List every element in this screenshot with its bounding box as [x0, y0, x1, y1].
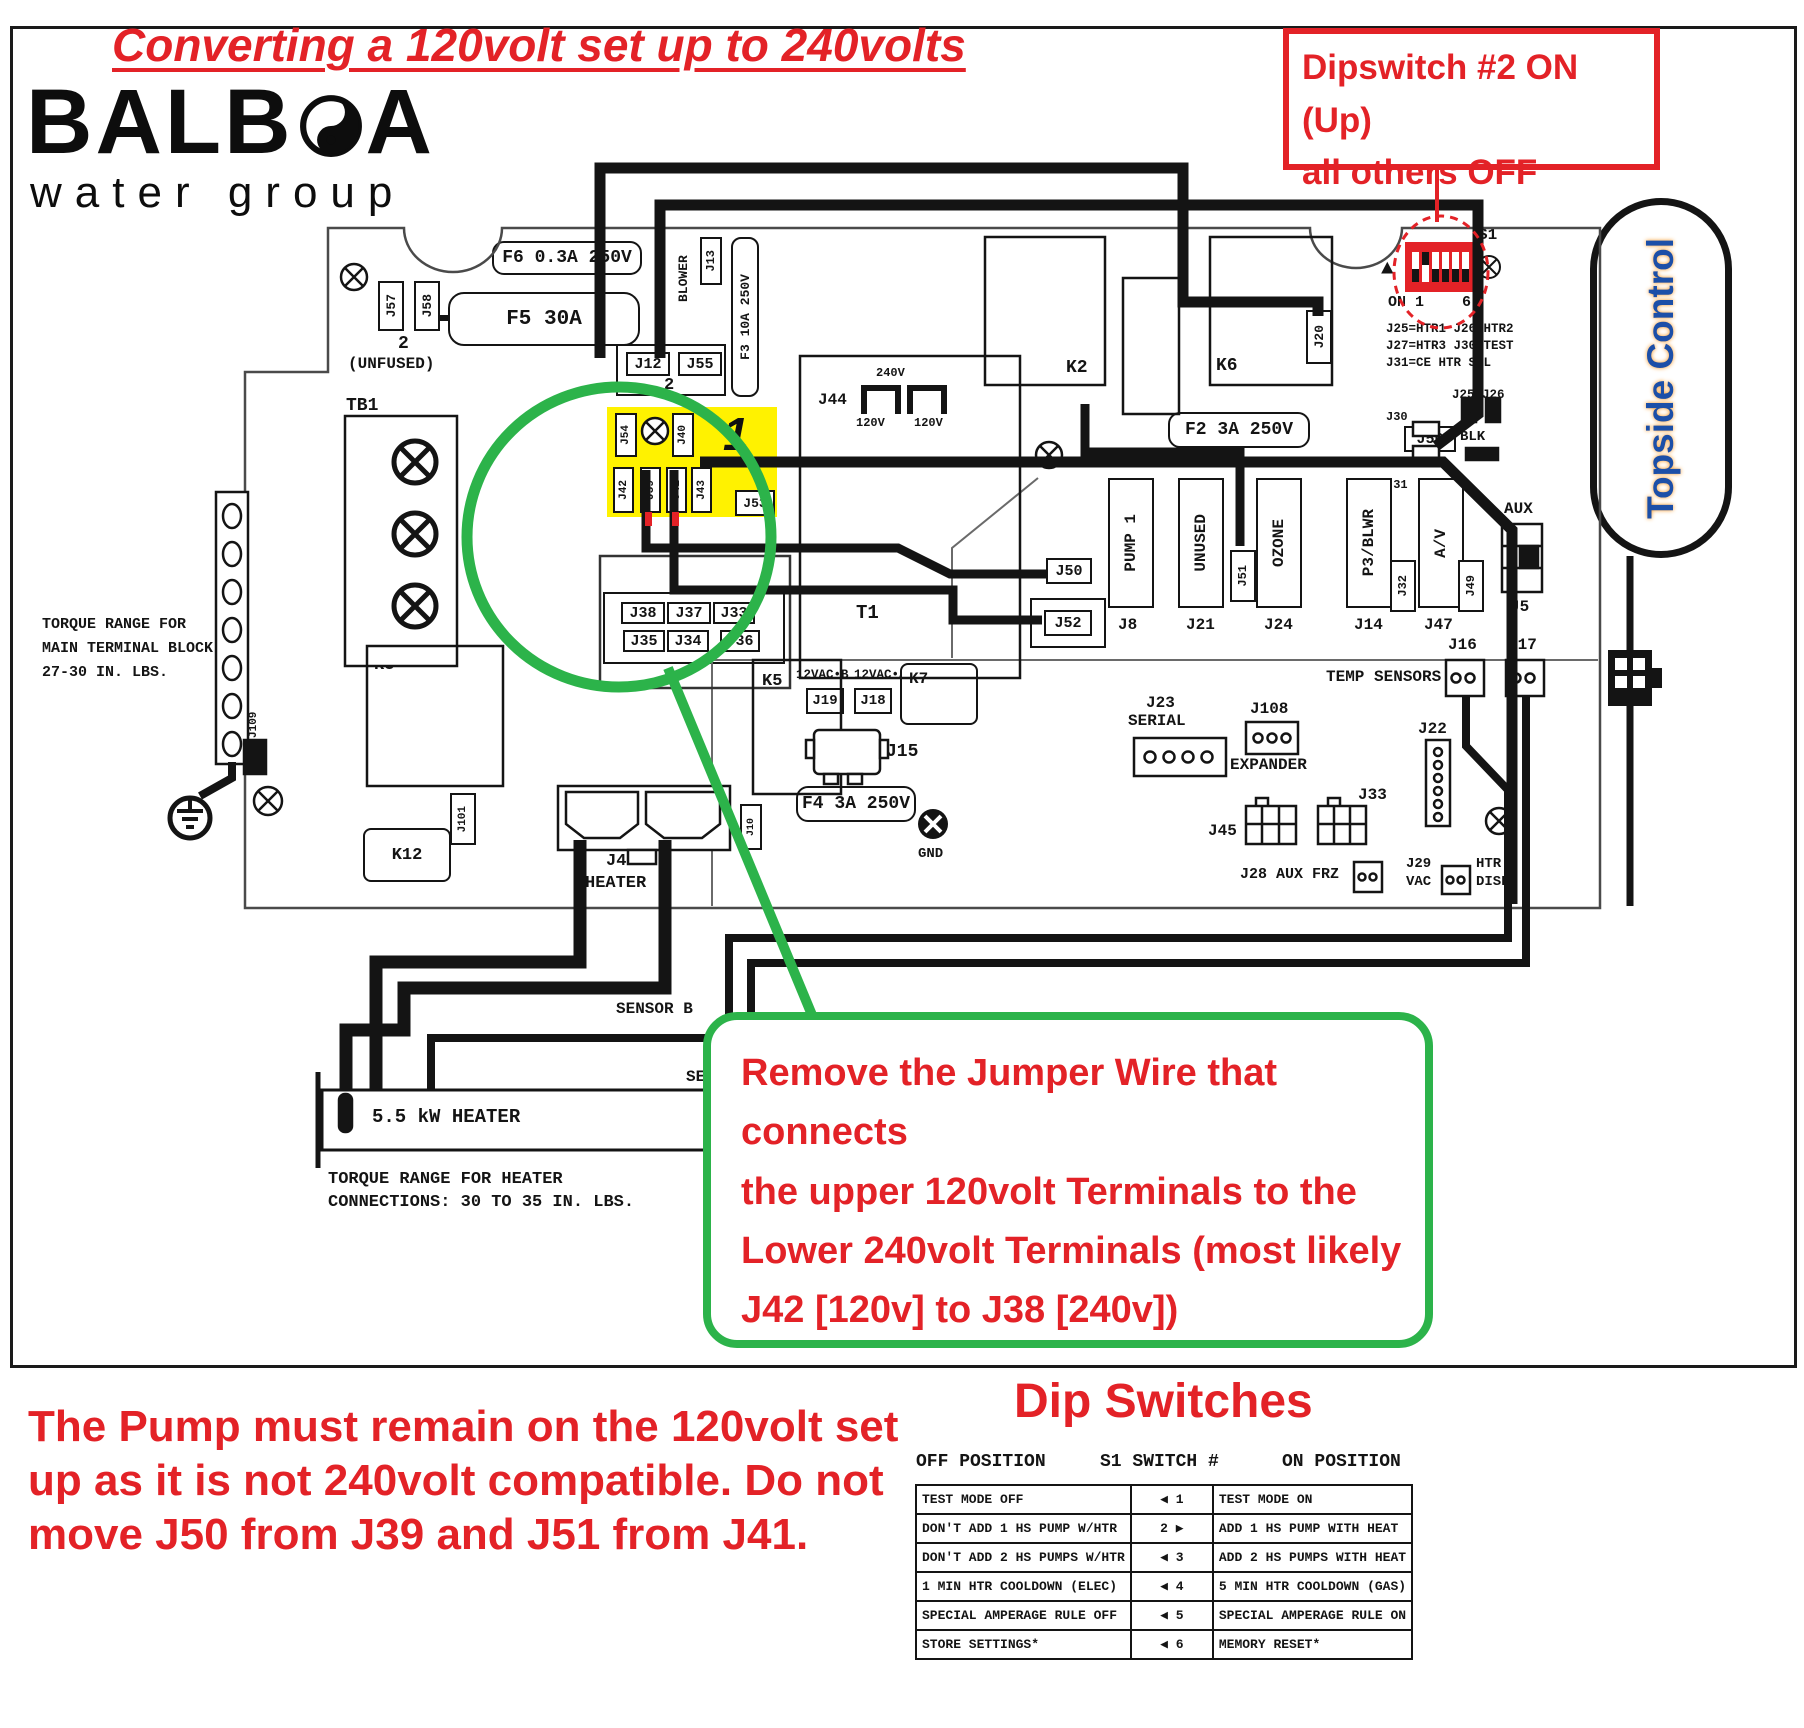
j45-label: J45 [1208, 822, 1237, 840]
temp-sensors-label: TEMP SENSORS [1326, 668, 1441, 686]
jumper-legend-1: J25=HTR1 J26=HTR2 [1386, 322, 1514, 336]
connector-j34: J34 [667, 630, 709, 652]
connector-j49-label: J49 [1464, 575, 1478, 597]
connector-j101: J101 [450, 793, 476, 845]
j15-label: J15 [886, 742, 918, 762]
connector-pump1-label: PUMP 1 [1122, 514, 1140, 572]
j17-label: J17 [1508, 636, 1537, 654]
connector-j13-label: J13 [704, 250, 718, 272]
connector-j40-label: J40 [677, 425, 689, 445]
connector-j33-jumper-label: J33 [720, 605, 747, 622]
on-1-label: ON 1 [1388, 294, 1424, 311]
dip-3 [1432, 252, 1439, 282]
relay-k3-label: K3 [374, 656, 394, 675]
connector-j13: J13 [700, 237, 722, 285]
connector-j52-label: J52 [1054, 615, 1081, 632]
blk-label: BLK [1460, 429, 1485, 445]
connector-pump1: PUMP 1 [1108, 478, 1154, 608]
relay-k12: K12 [363, 828, 451, 882]
connector-ozone-label: OZONE [1270, 519, 1288, 567]
jumper-callout-line1: Remove the Jumper Wire that connects [741, 1044, 1425, 1163]
dipswitch-s1 [1405, 242, 1475, 292]
table-row: 1 MIN HTR COOLDOWN (ELEC)◀ 45 MIN HTR CO… [916, 1572, 1412, 1601]
connector-j43: J43 [691, 467, 712, 513]
relay-k6-label: K6 [1216, 356, 1238, 376]
connector-j36-label: J36 [726, 633, 753, 650]
connector-j52-outer: J52 [1030, 598, 1106, 648]
connector-j20-label: J20 [1312, 325, 1327, 348]
j23-label: J23 [1146, 694, 1175, 712]
logo-text-right: A [366, 70, 432, 175]
dip-col-switch: S1 SWITCH # [1100, 1452, 1219, 1472]
relay-k7: K7 [900, 663, 978, 725]
dip-on-3: ADD 2 HS PUMPS WITH HEAT [1213, 1543, 1412, 1572]
fuse-f6: F6 0.3A 250V [492, 241, 642, 275]
expander-label: EXPANDER [1230, 756, 1307, 774]
j44-label: J44 [818, 391, 847, 409]
j21-label: J21 [1186, 616, 1215, 634]
connector-j19: J19 [806, 688, 844, 714]
dip-on-5: SPECIAL AMPERAGE RULE ON [1213, 1601, 1412, 1630]
tb1-terminal-2: 2 [352, 520, 368, 550]
serial-label: SERIAL [1128, 712, 1186, 730]
connector-j53: J53 [735, 490, 775, 516]
connector-j57: J57 [378, 281, 404, 331]
connector-j38: J38 [621, 602, 665, 624]
connector-j56-label: J56 [1416, 431, 1443, 448]
jumper-callout-line2: the upper 120volt Terminals to the [741, 1163, 1425, 1222]
dip-switches-table: TEST MODE OFF◀ 1TEST MODE ON DON'T ADD 1… [915, 1484, 1413, 1660]
jumper-legend-3: J31=CE HTR SEL [1386, 356, 1491, 370]
12vac-b-label: 12VAC•B [796, 668, 849, 682]
connector-j12-label: J12 [634, 356, 661, 373]
dipswitch-callout: Dipswitch #2 ON (Up) all others OFF [1283, 28, 1660, 170]
connector-j54-label: J54 [620, 425, 632, 445]
connector-j12: J12 [626, 352, 670, 376]
tb1-terminal-1: 1 [352, 448, 368, 478]
connector-j19-label: J19 [812, 693, 837, 709]
dip-sw-5: ◀ 5 [1131, 1601, 1213, 1630]
12vac-a-label: 12VAC•A [854, 668, 907, 682]
connector-j51: J51 [1230, 550, 1256, 602]
connector-j36: J36 [720, 630, 760, 652]
j14-label: J14 [1354, 616, 1383, 634]
highlight-step-1: 1 [723, 407, 749, 461]
jumper-callout-line3: Lower 240volt Terminals (most likely [741, 1222, 1425, 1281]
page: Converting a 120volt set up to 240volts … [0, 0, 1804, 1728]
torque-main-line2: MAIN TERMINAL BLOCK: [42, 640, 222, 657]
connector-j43-label: J43 [696, 480, 708, 500]
j12-block-count: 2 [664, 376, 674, 395]
htr-label: HTR [1476, 856, 1501, 872]
connector-av-label: A/V [1432, 529, 1450, 558]
dip-1 [1412, 252, 1419, 282]
connector-j37: J37 [667, 602, 711, 624]
j24-label: J24 [1264, 616, 1293, 634]
fuse-f5: F5 30A [448, 292, 640, 346]
relay-k12-label: K12 [392, 846, 423, 865]
jumper-callout-line4: J42 [120v] to J38 [240v]) [741, 1281, 1425, 1340]
fuse-f4-label: F4 3A 250V [802, 794, 910, 814]
dip-sw-6: ◀ 6 [1131, 1630, 1213, 1659]
connector-j50: J50 [1046, 558, 1092, 584]
connector-j32: J32 [1390, 560, 1416, 612]
jumper-bank-240v: J38 J37 J33 J35 J34 J36 [603, 592, 785, 664]
jumper-legend-2: J27=HTR3 J30=TEST [1386, 339, 1514, 353]
j109-label: J109 [248, 694, 260, 738]
sensor-b-label: SENSOR B [616, 1000, 693, 1018]
dipswitch-callout-line2: all others OFF [1302, 147, 1654, 200]
j5-label: J5 [1510, 598, 1529, 616]
connector-j20: J20 [1306, 310, 1332, 364]
dip-sw-3: ◀ 3 [1131, 1543, 1213, 1572]
logo-subtitle: water group [30, 168, 405, 218]
connector-j53-label: J53 [743, 496, 766, 511]
connector-j41: J41 [666, 467, 687, 513]
fuse-f2-label: F2 3A 250V [1185, 420, 1293, 440]
tb1-label: TB1 [346, 396, 378, 416]
yin-yang-icon [298, 93, 364, 159]
connector-j37-label: J37 [675, 605, 702, 622]
connector-p3blwr: P3/BLWR [1346, 478, 1392, 608]
unfused-label: (UNFUSED) [348, 355, 434, 373]
connector-j39: J39 [640, 467, 661, 513]
dip-col-on: ON POSITION [1282, 1452, 1401, 1472]
connector-unused-label: UNUSED [1192, 514, 1210, 572]
connector-j52: J52 [1044, 610, 1092, 636]
j44-120v-label-2: 120V [914, 416, 943, 430]
j8-label: J8 [1118, 616, 1137, 634]
connector-j42: J42 [613, 467, 634, 513]
connector-j51-label: J51 [1236, 565, 1250, 587]
dip-sw-4: ◀ 4 [1131, 1572, 1213, 1601]
connector-j42-label: J42 [618, 480, 630, 500]
fuse-f6-label: F6 0.3A 250V [502, 248, 632, 268]
pump-note-line1: The Pump must remain on the 120volt set [28, 1400, 898, 1454]
connector-j41-label: J41 [671, 480, 683, 500]
page-title: Converting a 120volt set up to 240volts [112, 18, 966, 72]
on-arrow: ▲ [1381, 258, 1394, 281]
relay-k7-label: K7 [909, 670, 928, 688]
dip-on-4: 5 MIN HTR COOLDOWN (GAS) [1213, 1572, 1412, 1601]
dipswitch-callout-line1: Dipswitch #2 ON (Up) [1302, 42, 1654, 147]
j33-label: J33 [1358, 786, 1387, 804]
connector-j58-label: J58 [420, 294, 435, 317]
dip-off-6: STORE SETTINGS* [916, 1630, 1131, 1659]
connector-p3blwr-label: P3/BLWR [1360, 509, 1378, 576]
torque-main-line3: 27-30 IN. LBS. [42, 664, 168, 681]
table-row: STORE SETTINGS*◀ 6MEMORY RESET* [916, 1630, 1412, 1659]
j28-aux-frz-label: J28 AUX FRZ [1240, 866, 1339, 883]
dip-on-1: TEST MODE ON [1213, 1485, 1412, 1514]
dip-on-2: ADD 1 HS PUMP WITH HEAT [1213, 1514, 1412, 1543]
connector-j34-label: J34 [674, 633, 701, 650]
torque-main-line1: TORQUE RANGE FOR [42, 616, 186, 633]
fuse-f3-label: F3 10A 250V [738, 274, 753, 360]
table-row: DON'T ADD 2 HS PUMPS W/HTR◀ 3ADD 2 HS PU… [916, 1543, 1412, 1572]
dip-on-6: MEMORY RESET* [1213, 1630, 1412, 1659]
heater-block-label: 5.5 kW HEATER [372, 1106, 520, 1128]
dip-2 [1422, 252, 1429, 282]
connector-j10-label: J10 [746, 818, 757, 836]
t1-label: T1 [856, 602, 879, 624]
j44-240v-label: 240V [876, 366, 905, 380]
connector-j57-label: J57 [384, 294, 399, 317]
connector-j39-label: J39 [645, 480, 657, 500]
j22-label: J22 [1418, 720, 1447, 738]
connector-j18-label: J18 [860, 693, 885, 709]
fuse-f3: F3 10A 250V [731, 237, 759, 397]
j44-120v-label-1: 120V [856, 416, 885, 430]
connector-j38-label: J38 [629, 605, 656, 622]
j30-label: J30 [1386, 410, 1408, 424]
dip-off-1: TEST MODE OFF [916, 1485, 1131, 1514]
pump-note: The Pump must remain on the 120volt set … [28, 1400, 898, 1562]
j46-heater-label: HEATER [585, 874, 646, 893]
disbl-label: DISBL [1476, 874, 1518, 890]
gnd-label: GND [918, 846, 943, 862]
dip-5 [1452, 252, 1459, 282]
dip-sw-1: ◀ 1 [1131, 1485, 1213, 1514]
pump-note-line3: move J50 from J39 and J51 from J41. [28, 1508, 898, 1562]
connector-j54: J54 [615, 413, 637, 457]
j25-j26-label: J25 J26 [1452, 388, 1505, 402]
dip-col-off: OFF POSITION [916, 1452, 1046, 1472]
table-row: SPECIAL AMPERAGE RULE OFF◀ 5SPECIAL AMPE… [916, 1601, 1412, 1630]
j46-label: J46 [606, 852, 637, 871]
dip-off-2: DON'T ADD 1 HS PUMP W/HTR [916, 1514, 1131, 1543]
connector-j35-label: J35 [630, 633, 657, 650]
topside-control: Topside Control [1590, 198, 1732, 558]
dip-4 [1442, 252, 1449, 282]
j47-label: J47 [1424, 616, 1453, 634]
vac-label: VAC [1406, 874, 1431, 890]
tb1-terminal-3: 3 [352, 592, 368, 622]
connector-j10: J10 [740, 804, 762, 850]
fuse-f4: F4 3A 250V [796, 786, 916, 822]
torque-heater-line1: TORQUE RANGE FOR HEATER [328, 1170, 563, 1189]
blower-label: BLOWER [676, 232, 691, 302]
s1-label: S1 [1478, 226, 1497, 244]
jumper-callout: Remove the Jumper Wire that connects the… [703, 1012, 1433, 1348]
aux-label: AUX [1504, 500, 1533, 518]
connector-j18: J18 [854, 688, 892, 714]
connector-j56: J56 [1404, 426, 1456, 452]
balboa-logo: BALB A [26, 70, 432, 175]
relay-k5-label: K5 [762, 672, 782, 691]
dip-off-3: DON'T ADD 2 HS PUMPS W/HTR [916, 1543, 1131, 1572]
dip-off-5: SPECIAL AMPERAGE RULE OFF [916, 1601, 1131, 1630]
j108-label: J108 [1250, 700, 1288, 718]
connector-j35: J35 [623, 630, 665, 652]
topside-control-label: Topside Control [1640, 238, 1682, 519]
connector-j49: J49 [1458, 560, 1484, 612]
connector-j32-label: J32 [1396, 575, 1410, 597]
connector-ozone: OZONE [1256, 478, 1302, 608]
j29-label: J29 [1406, 856, 1431, 872]
pump-note-line2: up as it is not 240volt compatible. Do n… [28, 1454, 898, 1508]
connector-unused: UNUSED [1178, 478, 1224, 608]
relay-k2-label: K2 [1066, 358, 1088, 378]
connector-j33-jumper: J33 [713, 602, 755, 624]
fuse-f5-label: F5 30A [506, 308, 582, 331]
fuse-f2: F2 3A 250V [1168, 412, 1310, 448]
connector-j12-j55-block: J12 J55 2 [616, 344, 726, 396]
dip-6 [1462, 252, 1469, 282]
connector-j40: J40 [672, 413, 694, 457]
connector-j55: J55 [678, 352, 722, 376]
light-label: LIGHT [822, 742, 867, 759]
connector-j58: J58 [414, 281, 440, 331]
torque-heater-line2: CONNECTIONS: 30 TO 35 IN. LBS. [328, 1193, 634, 1212]
unfused-count: 2 [398, 334, 409, 354]
j16-label: J16 [1448, 636, 1477, 654]
switch-6-label: 6 [1462, 294, 1471, 311]
table-row: DON'T ADD 1 HS PUMP W/HTR2 ▶ADD 1 HS PUM… [916, 1514, 1412, 1543]
table-row: TEST MODE OFF◀ 1TEST MODE ON [916, 1485, 1412, 1514]
dip-off-4: 1 MIN HTR COOLDOWN (ELEC) [916, 1572, 1131, 1601]
connector-j101-label: J101 [457, 806, 469, 832]
dip-switches-title: Dip Switches [1014, 1374, 1313, 1429]
connector-j50-label: J50 [1055, 563, 1082, 580]
logo-text-left: BALB [26, 70, 294, 175]
dip-sw-2: 2 ▶ [1131, 1514, 1213, 1543]
connector-j55-label: J55 [686, 356, 713, 373]
